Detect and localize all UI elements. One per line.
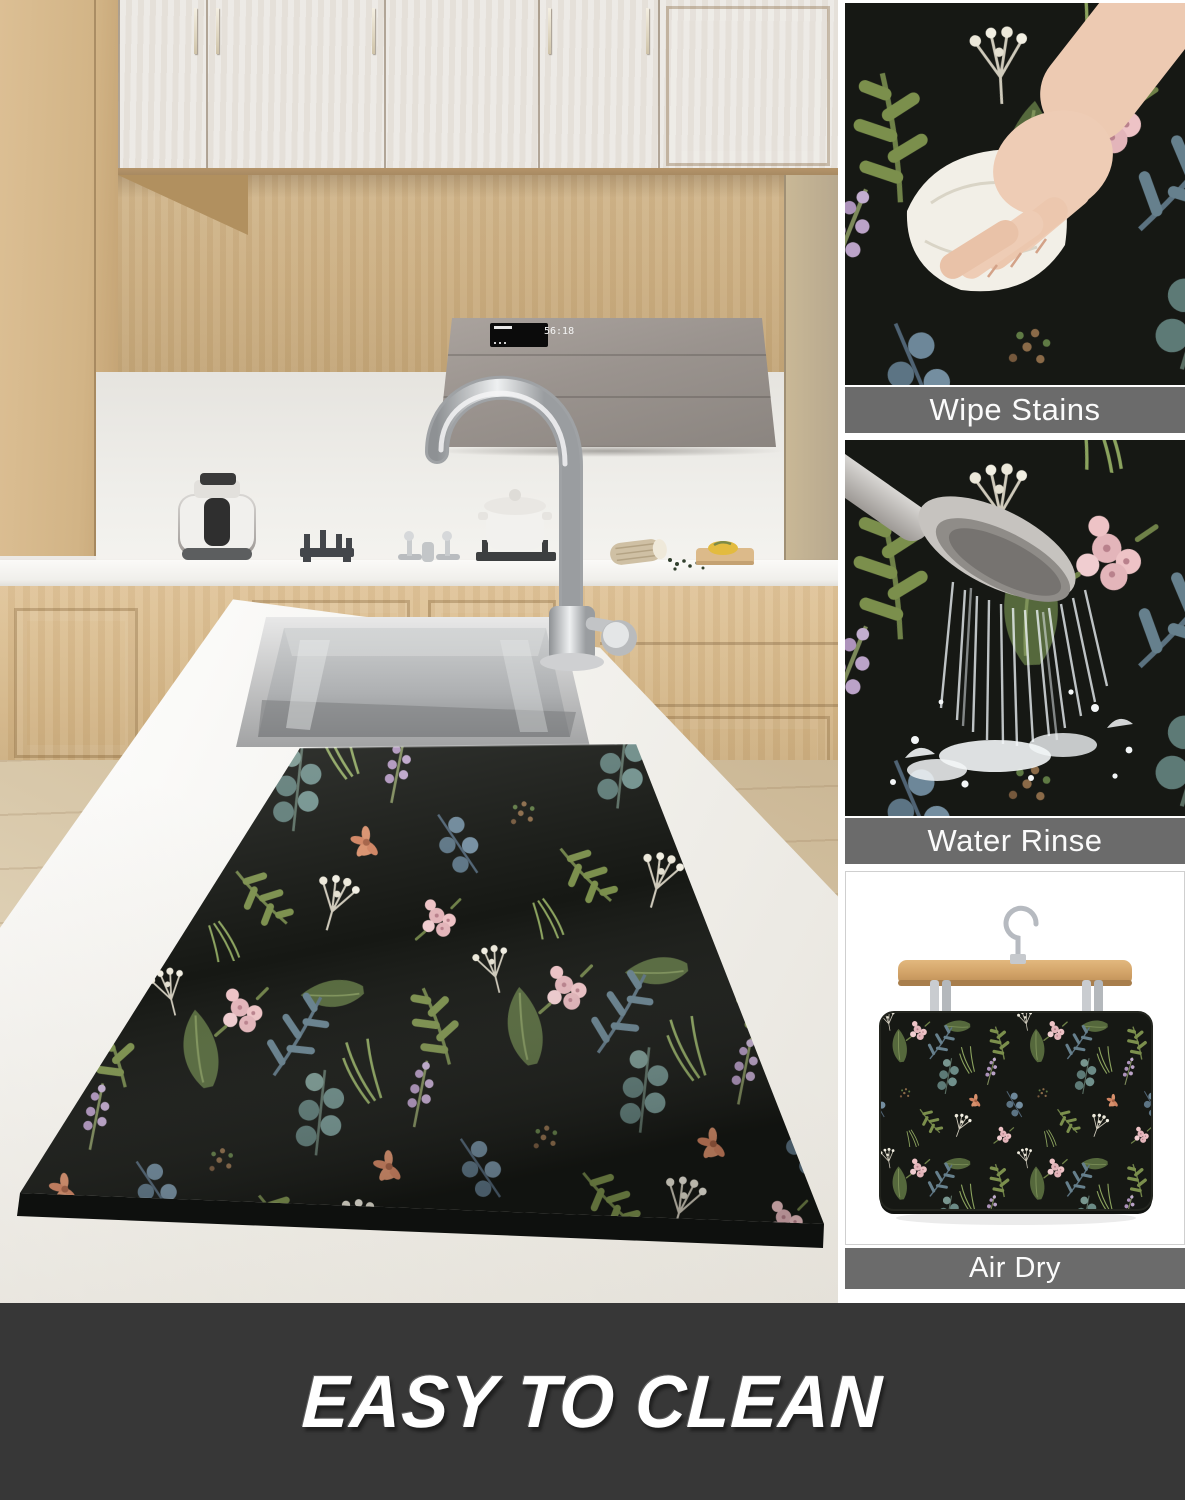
hanging-mat xyxy=(880,1012,1152,1225)
easy-to-clean-banner: EASY TO CLEAN xyxy=(0,1303,1185,1500)
feature-label-air-dry: Air Dry xyxy=(845,1248,1185,1289)
feature-photo-water-rinse: ; xyxy=(845,440,1185,816)
banner-text: EASY TO CLEAN xyxy=(300,1359,884,1444)
feature-label-text: Wipe Stains xyxy=(930,392,1101,428)
kitchen-photo: 56:18 xyxy=(0,0,838,1303)
island-scene xyxy=(0,0,838,1303)
feature-label-text: Water Rinse xyxy=(928,823,1103,859)
drying-mat xyxy=(17,744,824,1248)
feature-photo-air-dry xyxy=(845,871,1185,1245)
product-poster: 56:18 xyxy=(0,0,1185,1500)
feature-column: Wipe Stains xyxy=(845,0,1185,1303)
feature-label-text: Air Dry xyxy=(969,1252,1061,1285)
feature-photo-wipe-stains xyxy=(845,3,1185,385)
feature-label-wipe-stains: Wipe Stains xyxy=(845,387,1185,433)
feature-label-water-rinse: Water Rinse xyxy=(845,818,1185,864)
kitchen-sink xyxy=(236,617,590,747)
